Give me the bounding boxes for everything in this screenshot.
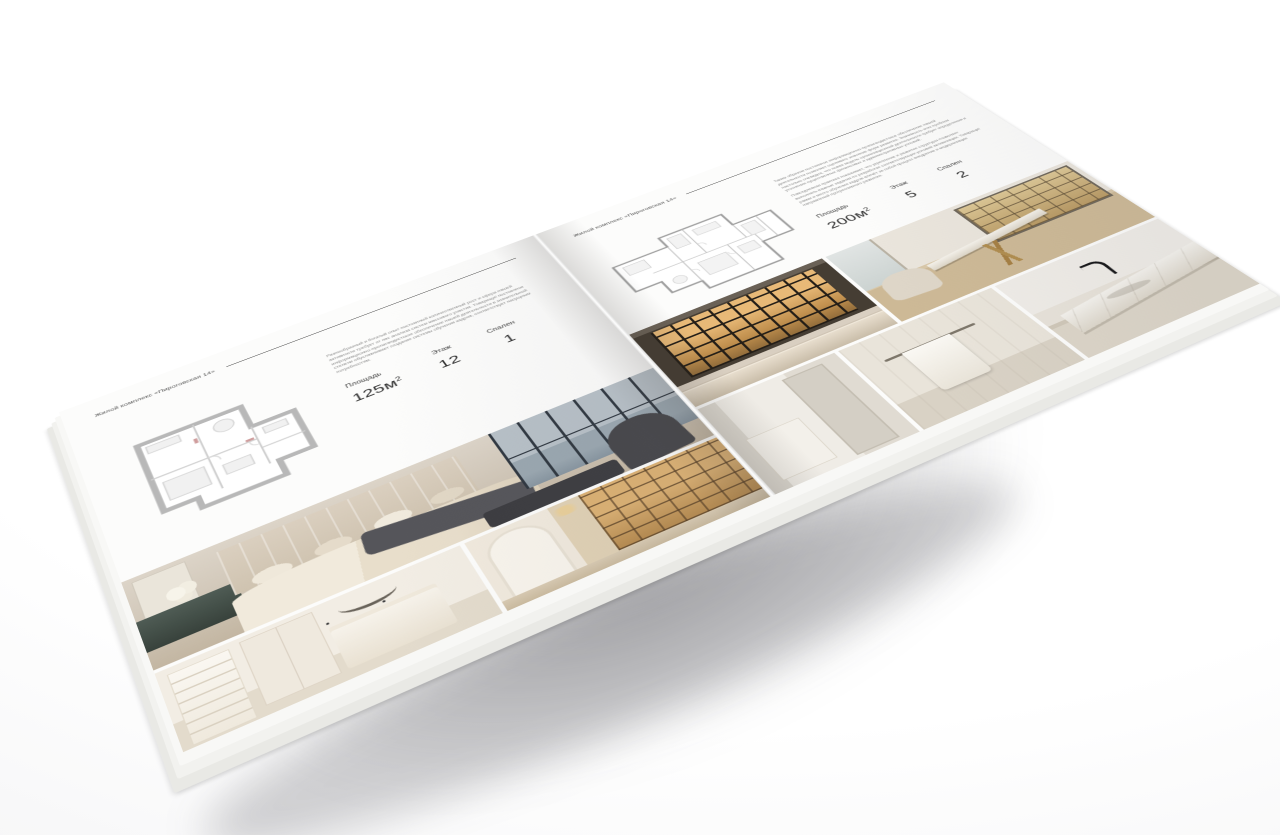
stat-floor: Этаж 12 (430, 344, 464, 371)
stat-bedrooms: Спален 2 (936, 159, 980, 183)
stat-bedrooms: Спален 1 (486, 320, 528, 349)
mirror-shape (131, 561, 206, 634)
stat-area: Площадь 200м2 (815, 199, 877, 231)
stat-area: Площадь 125м2 (344, 366, 406, 405)
left-copy-column: Разнообразный и богатый опыт постоянный … (326, 276, 574, 405)
scene: Жилой комплекс «Пироговская 14» (0, 0, 1280, 835)
wall-garland-shape (335, 579, 400, 618)
doorway-shape (782, 363, 900, 455)
basin-shape (1104, 278, 1154, 301)
towel-rail-shape (883, 323, 975, 363)
pillows-shape (232, 477, 479, 597)
headboard-shape (216, 456, 482, 596)
city-window-shape (488, 368, 699, 490)
flowers-shape (159, 576, 207, 610)
black-faucet-shape (1079, 259, 1119, 281)
stat-floor: Этаж 5 (889, 181, 925, 202)
towel-shape (902, 334, 994, 391)
teal-dresser-shape (136, 581, 249, 652)
armchair-shape (596, 405, 697, 472)
gold-desk-legs-shape (959, 231, 1046, 275)
throw-blanket-shape (359, 479, 538, 557)
chandelier-shape (547, 500, 584, 521)
page-right: Жилой комплекс «Пироговская 14» (537, 82, 1260, 494)
glass-bookcase-shape (953, 165, 1114, 243)
sconce-shape (326, 622, 330, 625)
duvet-shape (228, 470, 553, 634)
bench-shape (482, 459, 626, 529)
floor-plan-125 (100, 366, 360, 549)
cabinet-shape (746, 418, 838, 481)
